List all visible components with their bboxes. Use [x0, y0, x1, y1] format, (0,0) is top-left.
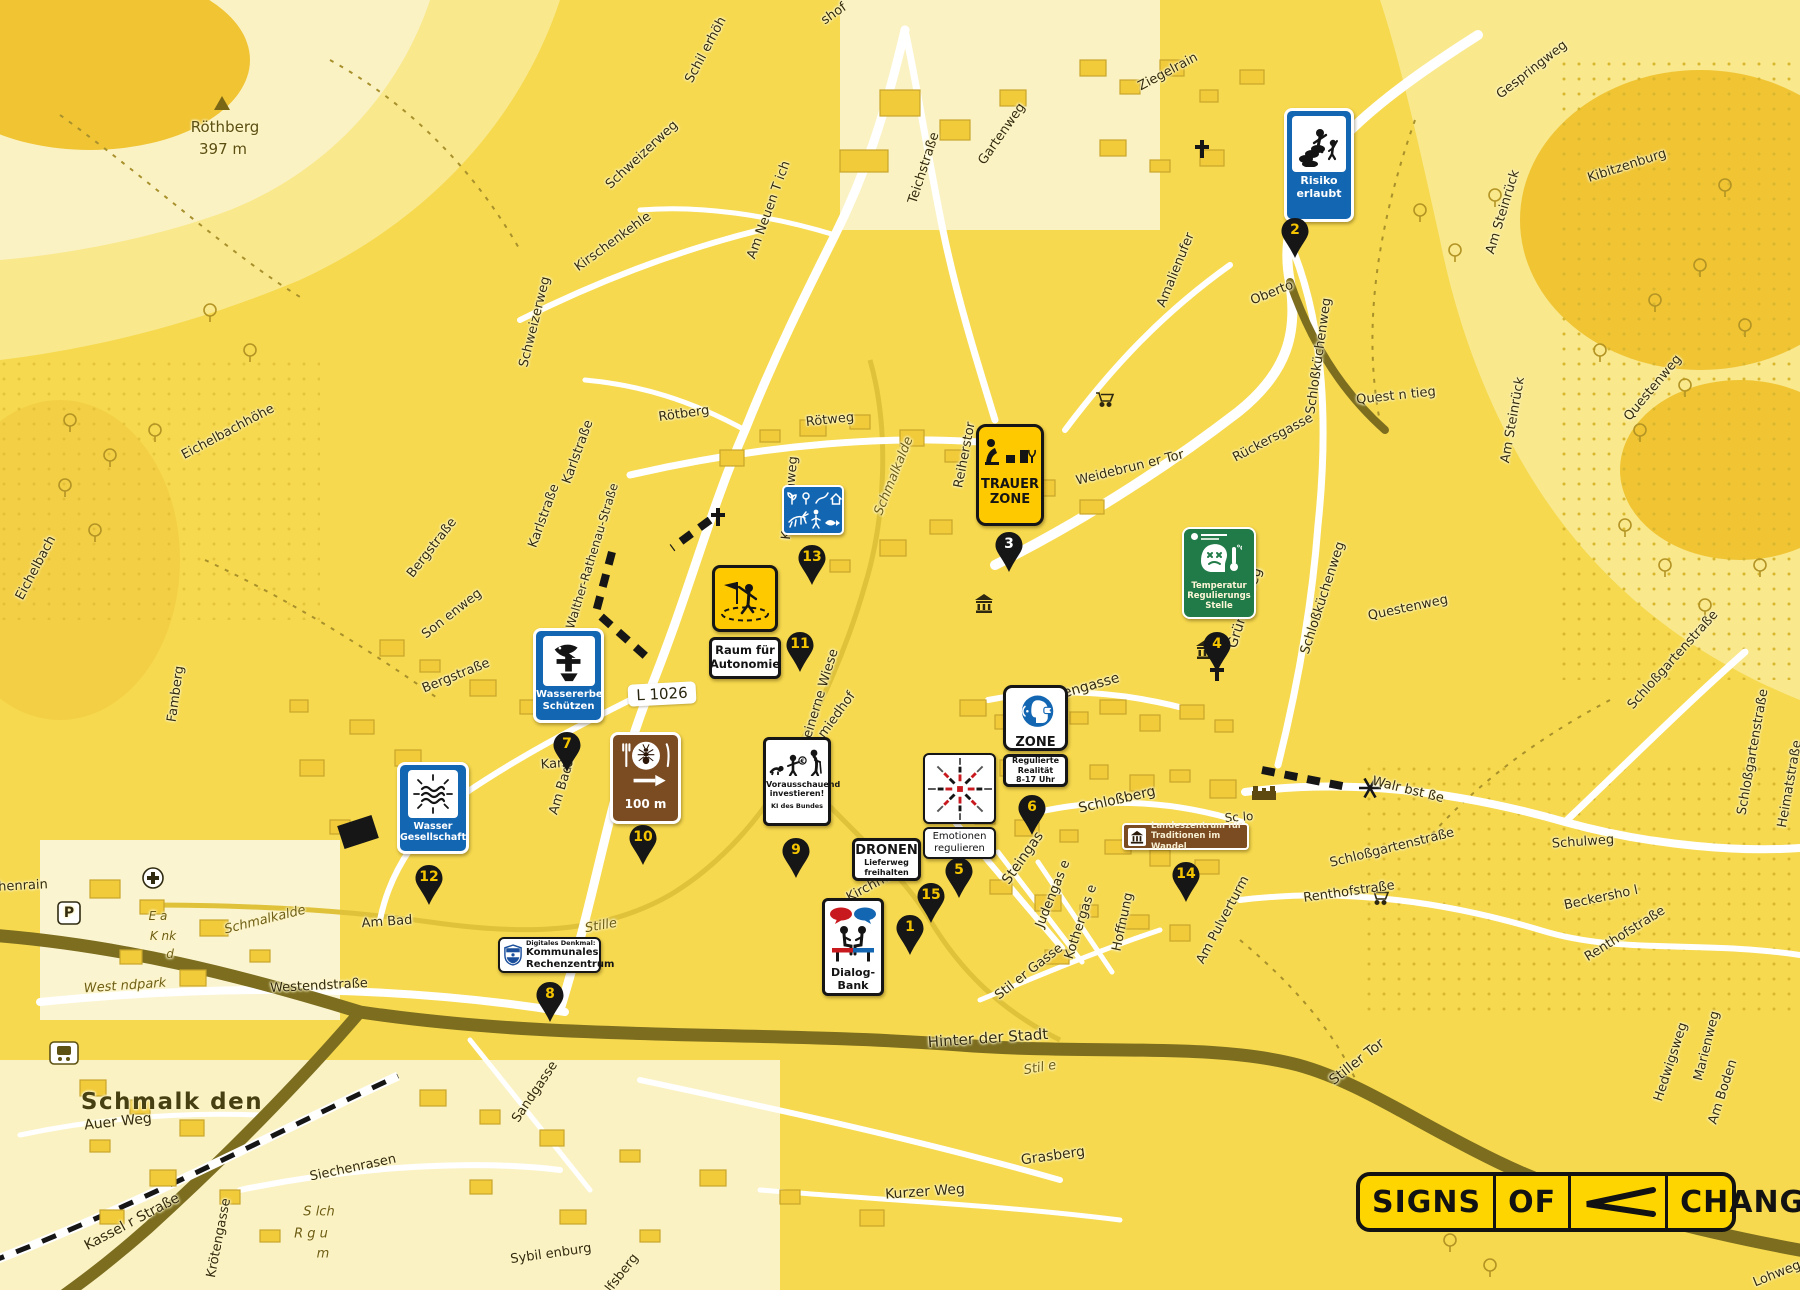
temple-icon [1128, 828, 1146, 846]
sign-temperatur-regulierung: C TemperaturRegulierungsStelle [1182, 527, 1256, 619]
map-marker-14[interactable]: 14 [1171, 861, 1201, 903]
town-label: Schmalk den [81, 1089, 263, 1115]
area-label: S lch [303, 1205, 334, 1220]
map-marker-3[interactable]: 3 [994, 531, 1024, 573]
sign-emotionen-plate: Emotionenregulieren [923, 827, 996, 859]
fish-totem-icon [547, 639, 591, 683]
logo-arrow-icon [1568, 1176, 1665, 1228]
sign-kommunales-rechenzentrum: Digitales Denkmal: Kommunales Rechenzent… [498, 937, 601, 973]
logo-word-signs: SIGNS [1360, 1176, 1493, 1228]
map-marker-2[interactable]: 2 [1280, 217, 1310, 259]
sign-wasser-gesellschaft: WasserGesellschaft [397, 762, 469, 854]
sign-nature-zone [782, 485, 844, 535]
sign-vorausschauend-investieren: € Vorausschauendinvestieren! KI des Bund… [763, 737, 831, 826]
sign-raum-fuer-autonomie [712, 565, 778, 632]
insect-on-plate-fork-knife-icon [616, 735, 676, 793]
svg-text:C: C [1240, 544, 1242, 552]
map-marker-9[interactable]: 9 [781, 837, 811, 879]
two-figures-bench-speech-bubbles-icon [827, 905, 879, 963]
map-marker-4[interactable]: 4 [1202, 631, 1232, 673]
area-label: E a [149, 909, 168, 923]
svg-text:€: € [799, 758, 804, 765]
peak-label: Röthberg [191, 118, 260, 136]
mourning-person-tree-stumps-icon [982, 435, 1038, 467]
heritage-shield-icon [504, 943, 522, 967]
map-background [0, 0, 1800, 1290]
sign-zone-regulierte-realitaet: ZONE [1003, 685, 1068, 751]
baby-child-elder-icon: € [768, 745, 826, 776]
radiant-waves-icon [411, 772, 455, 816]
parking-label: P [64, 905, 74, 921]
map-marker-11[interactable]: 11 [785, 631, 815, 673]
castle-icon [1252, 786, 1276, 800]
area-label: K nk [150, 929, 176, 943]
map-marker-5[interactable]: 5 [944, 857, 974, 899]
figure-with-flag-icon [718, 576, 772, 622]
sign-emotionen-diagram [923, 753, 996, 824]
logo-word-of: OF [1493, 1176, 1568, 1228]
logo-word-change: CHANGE [1665, 1176, 1800, 1228]
area-label: d [166, 947, 174, 961]
agency-logo-icon [1191, 533, 1254, 540]
area-label: m [317, 1247, 330, 1262]
map-marker-13[interactable]: 13 [797, 544, 827, 586]
map-marker-6[interactable]: 6 [1017, 794, 1047, 836]
angry-head-thermometer-icon: C [1196, 541, 1242, 577]
sign-zone-plate: RegulierteRealität8-17 Uhr [1003, 754, 1068, 787]
hospital-icon [143, 868, 163, 888]
sign-insekten-gasthaus: 100 m [610, 732, 681, 824]
sign-raum-fuer-autonomie-plate: Raum fürAutonomie [709, 637, 781, 679]
nature-pictogram-grid-icon [784, 487, 842, 531]
sign-trauer-zone: TRAUERZONE [976, 424, 1044, 526]
sign-landeszentrum-traditionen: Landeszentrum fürTraditionen im Wandel [1122, 823, 1249, 850]
street-label: henrain [0, 877, 48, 895]
radial-emotion-diagram-icon [928, 758, 992, 820]
train-station-icon [50, 1042, 78, 1064]
city-map-schmalkalden: P Schil erhöh shof Schweizerweg Kirschen… [0, 0, 1800, 1290]
map-marker-7[interactable]: 7 [552, 731, 582, 773]
map-marker-8[interactable]: 8 [535, 981, 565, 1023]
signs-of-change-logo: SIGNS OF CHANGE [1356, 1172, 1736, 1232]
map-marker-10[interactable]: 10 [628, 824, 658, 866]
sign-wassererbe-schuetzen: WassererbeSchützen [533, 628, 604, 723]
sign-risiko-erlaubt: Risikoerlaubt [1284, 108, 1354, 222]
sign-dronen-lieferweg: DRONEN Lieferwegfreihalten [852, 838, 921, 881]
children-playing-on-rubble-icon [1296, 121, 1342, 167]
sign-dialog-bank: Dialog-Bank [822, 898, 884, 996]
peak-elevation-label: 397 m [199, 140, 247, 158]
area-label: R g u [294, 1227, 328, 1242]
road-badge: L 1026 [627, 681, 696, 707]
map-marker-12[interactable]: 12 [414, 864, 444, 906]
vr-head-signal-icon [1014, 691, 1058, 733]
map-marker-15[interactable]: 15 [916, 882, 946, 924]
